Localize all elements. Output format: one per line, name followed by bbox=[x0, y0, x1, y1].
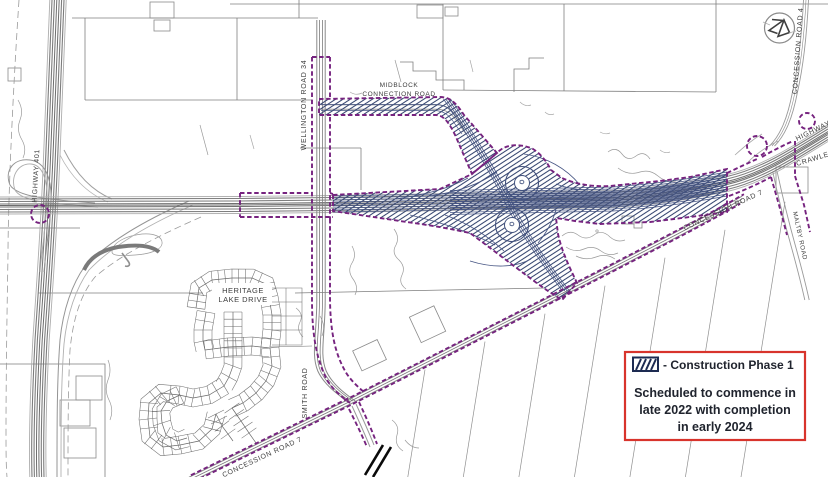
svg-text:MIDBLOCK: MIDBLOCK bbox=[380, 82, 419, 89]
svg-text:SMITH ROAD: SMITH ROAD bbox=[302, 368, 309, 419]
svg-text:WELLINGTON ROAD 34: WELLINGTON ROAD 34 bbox=[301, 60, 308, 151]
svg-text:CONNECTION ROAD: CONNECTION ROAD bbox=[362, 91, 435, 98]
svg-text:HERITAGE: HERITAGE bbox=[222, 286, 264, 295]
svg-text:in early 2024: in early 2024 bbox=[677, 420, 752, 434]
svg-text:Scheduled to commence in: Scheduled to commence in bbox=[634, 386, 796, 400]
svg-text:- Construction Phase 1: - Construction Phase 1 bbox=[663, 358, 794, 372]
svg-text:LAKE DRIVE: LAKE DRIVE bbox=[218, 295, 267, 304]
svg-text:late 2022 with completion: late 2022 with completion bbox=[639, 403, 790, 417]
